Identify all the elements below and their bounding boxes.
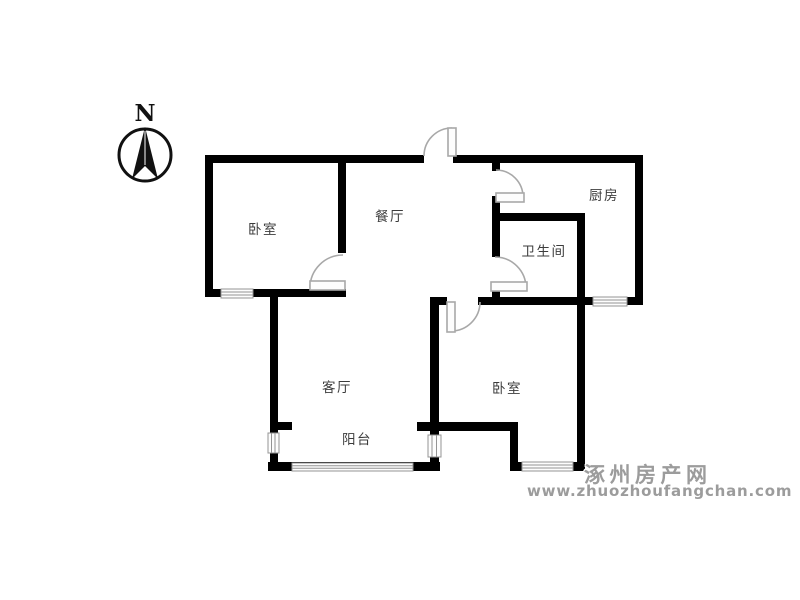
- door-leaf: [496, 193, 524, 202]
- wall-segment: [278, 422, 292, 430]
- wall-segment: [492, 213, 585, 221]
- window-balcony-left: [268, 433, 279, 453]
- wall-segment: [577, 213, 585, 470]
- door-leaf: [448, 128, 456, 156]
- wall-segment: [492, 196, 500, 257]
- window-kitchen: [593, 297, 627, 306]
- window-balcony-bottom: [292, 463, 413, 471]
- window-balcony-right: [428, 435, 441, 457]
- door-leaf: [491, 282, 527, 291]
- window-bedroom-bottom: [522, 462, 573, 471]
- compass-n-label: N: [134, 100, 155, 127]
- wall-segment: [205, 155, 213, 297]
- wall-layer: [205, 155, 643, 471]
- wall-segment: [417, 422, 518, 431]
- bathroom-door: [491, 257, 527, 291]
- kitchen-door: [496, 170, 524, 202]
- wall-segment: [270, 297, 278, 433]
- entrance-door: [424, 128, 456, 156]
- floorplan-drawing: N: [0, 0, 800, 600]
- wall-segment: [453, 155, 643, 163]
- room-label-living: 客厅: [322, 376, 352, 396]
- room-label-kitchen: 厨房: [589, 184, 619, 204]
- room-label-bathroom: 卫生间: [522, 240, 567, 260]
- watermark-site-url: www.zhuozhoufangchan.com: [527, 482, 792, 500]
- wall-segment: [430, 297, 439, 435]
- room-label-balcony: 阳台: [342, 428, 372, 448]
- room-label-dining: 餐厅: [375, 205, 405, 225]
- wall-segment: [338, 155, 346, 253]
- room-label-bedroom-top: 卧室: [248, 218, 278, 238]
- window-bedroom-top: [221, 289, 253, 298]
- door-leaf: [310, 281, 345, 290]
- door-leaf: [447, 302, 455, 332]
- wall-segment: [205, 155, 424, 163]
- bedroom-bottom-door: [447, 302, 480, 332]
- room-label-bedroom-bottom: 卧室: [492, 377, 522, 397]
- window-layer: [221, 289, 627, 471]
- compass-north-icon: N: [119, 100, 171, 181]
- bedroom-top-door: [310, 255, 345, 290]
- wall-segment: [635, 155, 643, 305]
